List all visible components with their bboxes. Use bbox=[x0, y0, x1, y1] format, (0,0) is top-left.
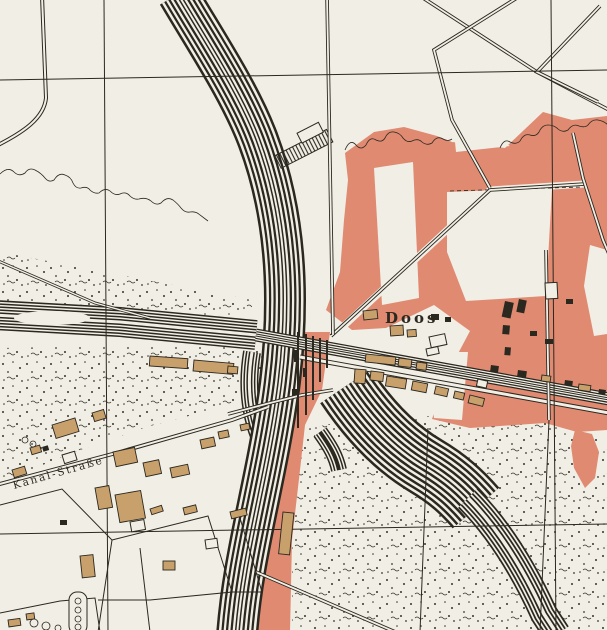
map-viewport: Doos Kanal-Straße bbox=[0, 0, 607, 630]
map-canvas: Doos Kanal-Straße bbox=[0, 0, 607, 630]
embankment-lens-island bbox=[14, 311, 90, 325]
label-village-doos: Doos bbox=[385, 309, 438, 327]
